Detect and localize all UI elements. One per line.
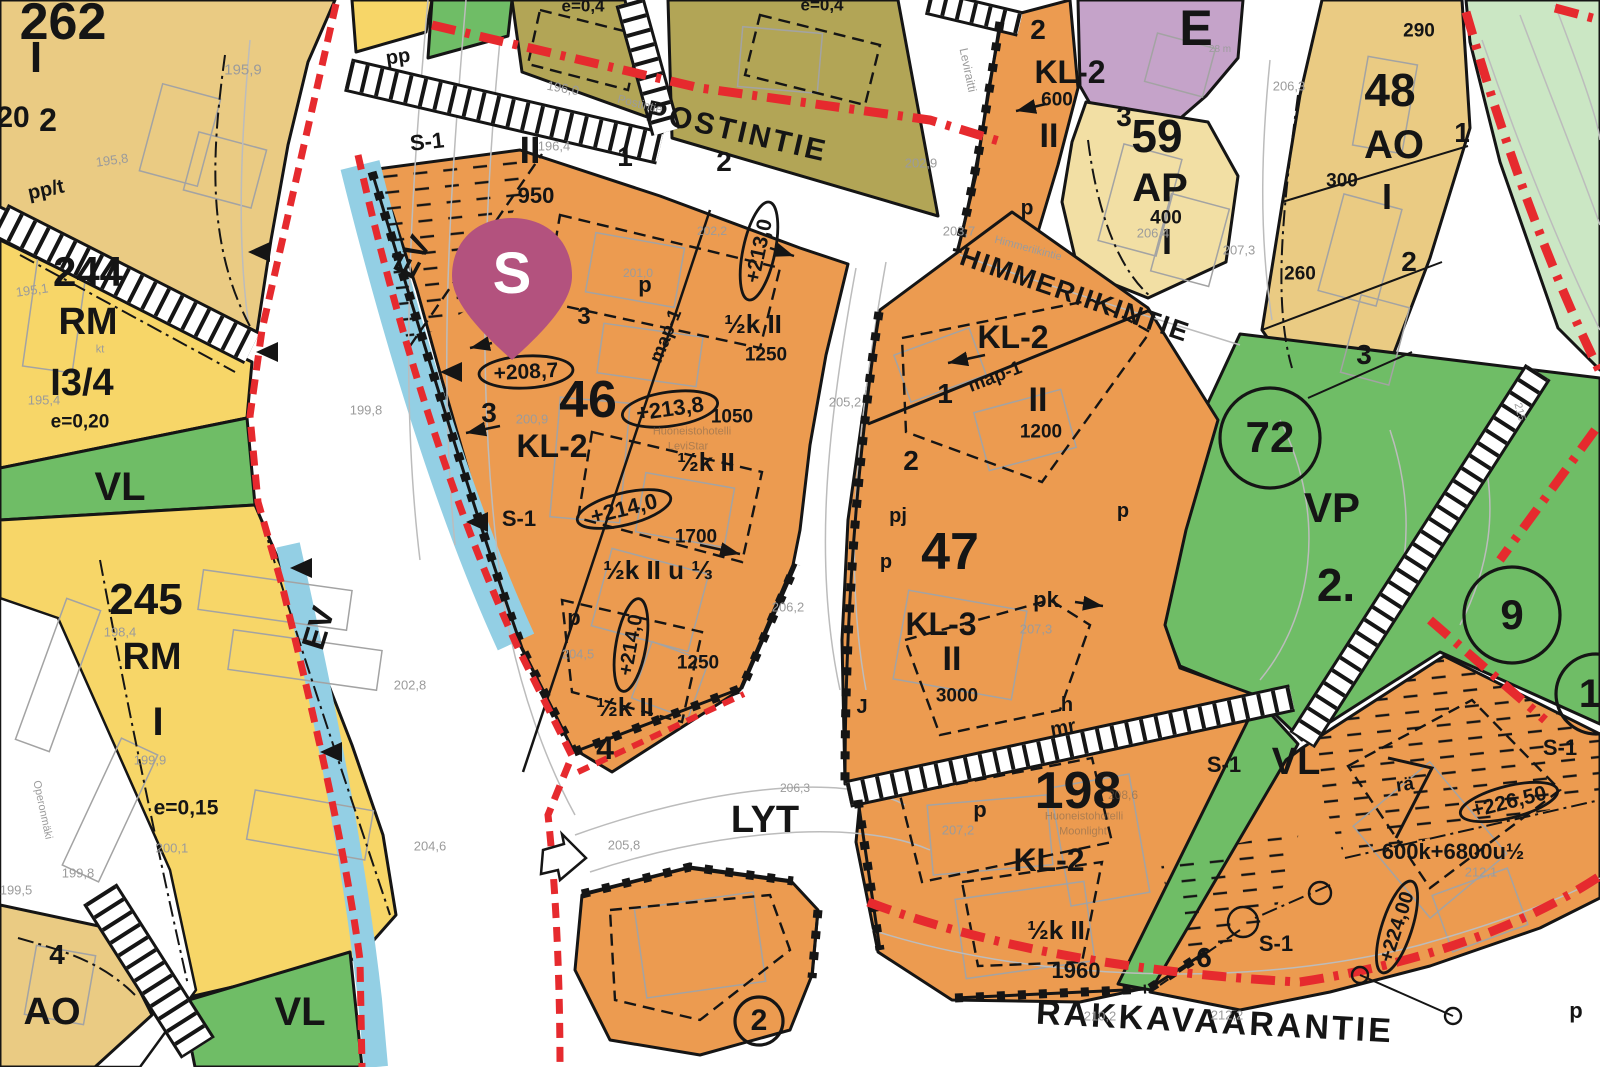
map-canvas[interactable] xyxy=(0,0,1600,1067)
zoning-map-view[interactable]: 262I202pp/t195,9195,8244RMI3/4e=0,20195,… xyxy=(0,0,1600,1067)
